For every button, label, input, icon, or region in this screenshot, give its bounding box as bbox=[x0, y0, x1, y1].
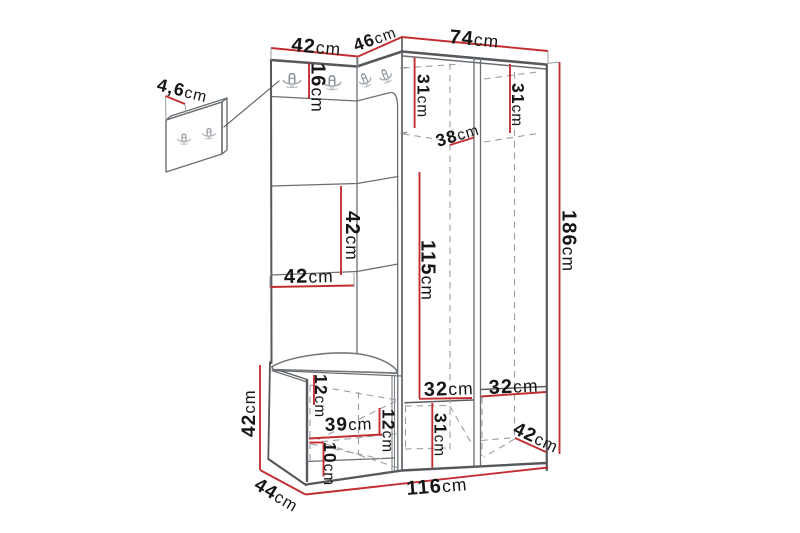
svg-text:31cm: 31cm bbox=[431, 413, 451, 457]
svg-text:42cm: 42cm bbox=[291, 34, 343, 60]
svg-text:12cm: 12cm bbox=[311, 374, 331, 418]
svg-text:42cm: 42cm bbox=[239, 389, 260, 437]
svg-text:16cm: 16cm bbox=[307, 63, 329, 113]
svg-text:31cm: 31cm bbox=[508, 83, 528, 127]
svg-text:186cm: 186cm bbox=[558, 210, 580, 272]
svg-text:10cm: 10cm bbox=[320, 442, 340, 486]
svg-text:31cm: 31cm bbox=[414, 74, 434, 118]
svg-text:32cm: 32cm bbox=[488, 374, 539, 399]
svg-text:42cm: 42cm bbox=[341, 211, 363, 261]
svg-text:115cm: 115cm bbox=[417, 240, 439, 301]
svg-text:12cm: 12cm bbox=[379, 409, 399, 453]
svg-text:32cm: 32cm bbox=[423, 377, 474, 401]
svg-text:42cm: 42cm bbox=[284, 265, 334, 288]
svg-text:39cm: 39cm bbox=[324, 413, 372, 436]
